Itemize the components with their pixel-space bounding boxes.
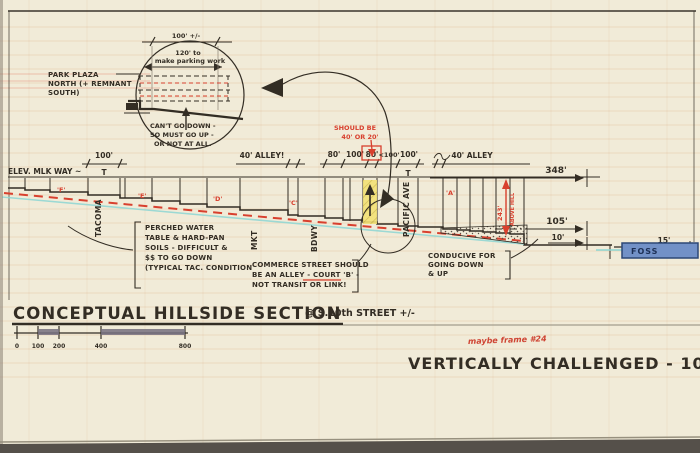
soils-note-line2: TABLE & HARD-PAN	[145, 234, 225, 242]
scale-tick-800: 800	[179, 343, 192, 350]
foss-label: FOSS	[631, 247, 658, 256]
park-plaza-line1: PARK PLAZA	[48, 71, 99, 79]
bubble-dim-100: 100' +/-	[172, 32, 201, 40]
elev-mlk-label: ELEV. MLK WAY ~	[8, 167, 81, 176]
scale-tick-200: 200	[53, 343, 66, 350]
bubble-note-line3: OR NOT AT ALL.	[154, 140, 211, 148]
section-title-location: @ S.10th STREET +/-	[305, 308, 415, 319]
soils-note-line3: SOILS - DIFFICULT &	[145, 244, 228, 252]
scale-fill-2	[101, 329, 185, 335]
footer-title: VERTICALLY CHALLENGED - 101	[408, 354, 700, 373]
scale-tick-400: 400	[95, 343, 108, 350]
bubble-dim-120-line1: 120' to	[175, 49, 201, 57]
block-letter-f: 'F'	[57, 186, 65, 194]
scanned-hillside-section-sketch: 100' +/- 120' to make parking work CAN'T…	[0, 0, 700, 453]
soils-note-line4: $$ TO GO DOWN	[145, 254, 212, 262]
dim-80a: 80'	[328, 150, 341, 159]
dim-right-T: T	[405, 169, 411, 178]
dim-243-note: ABOVE HILL	[510, 192, 516, 226]
dim-348: 348'	[545, 166, 567, 176]
conducive-note-line1: CONDUCIVE FOR	[428, 252, 496, 260]
dim-100c: 100'	[400, 150, 418, 159]
soils-note-line5: (TYPICAL TAC. CONDITION	[145, 264, 252, 272]
dim-243: 243'	[496, 205, 504, 221]
dim-100b: <100'	[378, 151, 399, 159]
park-plaza-line3: SOUTH)	[48, 89, 80, 97]
commerce-note-line2: BE AN ALLEY - COURT 'B' -	[252, 271, 359, 279]
scale-tick-100: 100	[32, 343, 45, 350]
dim-10: 10'	[552, 233, 565, 242]
red-note-line1: SHOULD BE	[334, 124, 376, 132]
block-letter-e: 'E'	[138, 192, 146, 200]
dim-left-T: T	[101, 168, 107, 177]
street-label-tacoma: TACOMA	[94, 199, 103, 237]
dim-alley-left: 40' ALLEY!	[240, 151, 285, 160]
dim-105: 105'	[546, 217, 568, 227]
section-title: CONCEPTUAL HILLSIDE SECTION	[13, 304, 342, 323]
conducive-note-line3: & UP	[428, 270, 448, 278]
street-label-bdwy: BDWY	[310, 225, 319, 252]
foss-waterway: FOSS	[622, 243, 698, 258]
red-note-line2: 40' OR 20'	[341, 133, 378, 141]
soils-note-line1: PERCHED WATER	[145, 224, 215, 232]
conducive-note-line2: GOING DOWN	[428, 261, 484, 269]
scale-tick-0: 0	[15, 343, 19, 350]
commerce-note-line1: COMMERCE STREET SHOULD	[252, 261, 369, 269]
scale-fill-1	[38, 329, 59, 335]
park-plaza-line2: NORTH (+ REMNANT	[48, 80, 132, 88]
street-label-pacific: PACIFIC AVE	[402, 181, 411, 237]
vertical-guide-lines	[0, 0, 700, 453]
block-letter-c: 'C'	[289, 199, 298, 207]
commerce-note-line3: NOT TRANSIT OR LINK!	[252, 281, 347, 289]
bubble-note-line2: SO MUST GO UP -	[150, 131, 214, 139]
sketch-canvas: 100' +/- 120' to make parking work CAN'T…	[0, 0, 700, 453]
block-letter-a: 'A'	[446, 189, 455, 197]
street-label-mkt: MKT	[250, 230, 259, 250]
block-letter-d: 'D'	[213, 195, 222, 203]
dim-left-100: 100'	[95, 151, 113, 160]
bubble-note-line1: CAN'T GO DOWN -	[150, 122, 216, 130]
dim-100a: 100'	[346, 150, 364, 159]
dim-alley-right: 40' ALLEY	[451, 151, 493, 160]
